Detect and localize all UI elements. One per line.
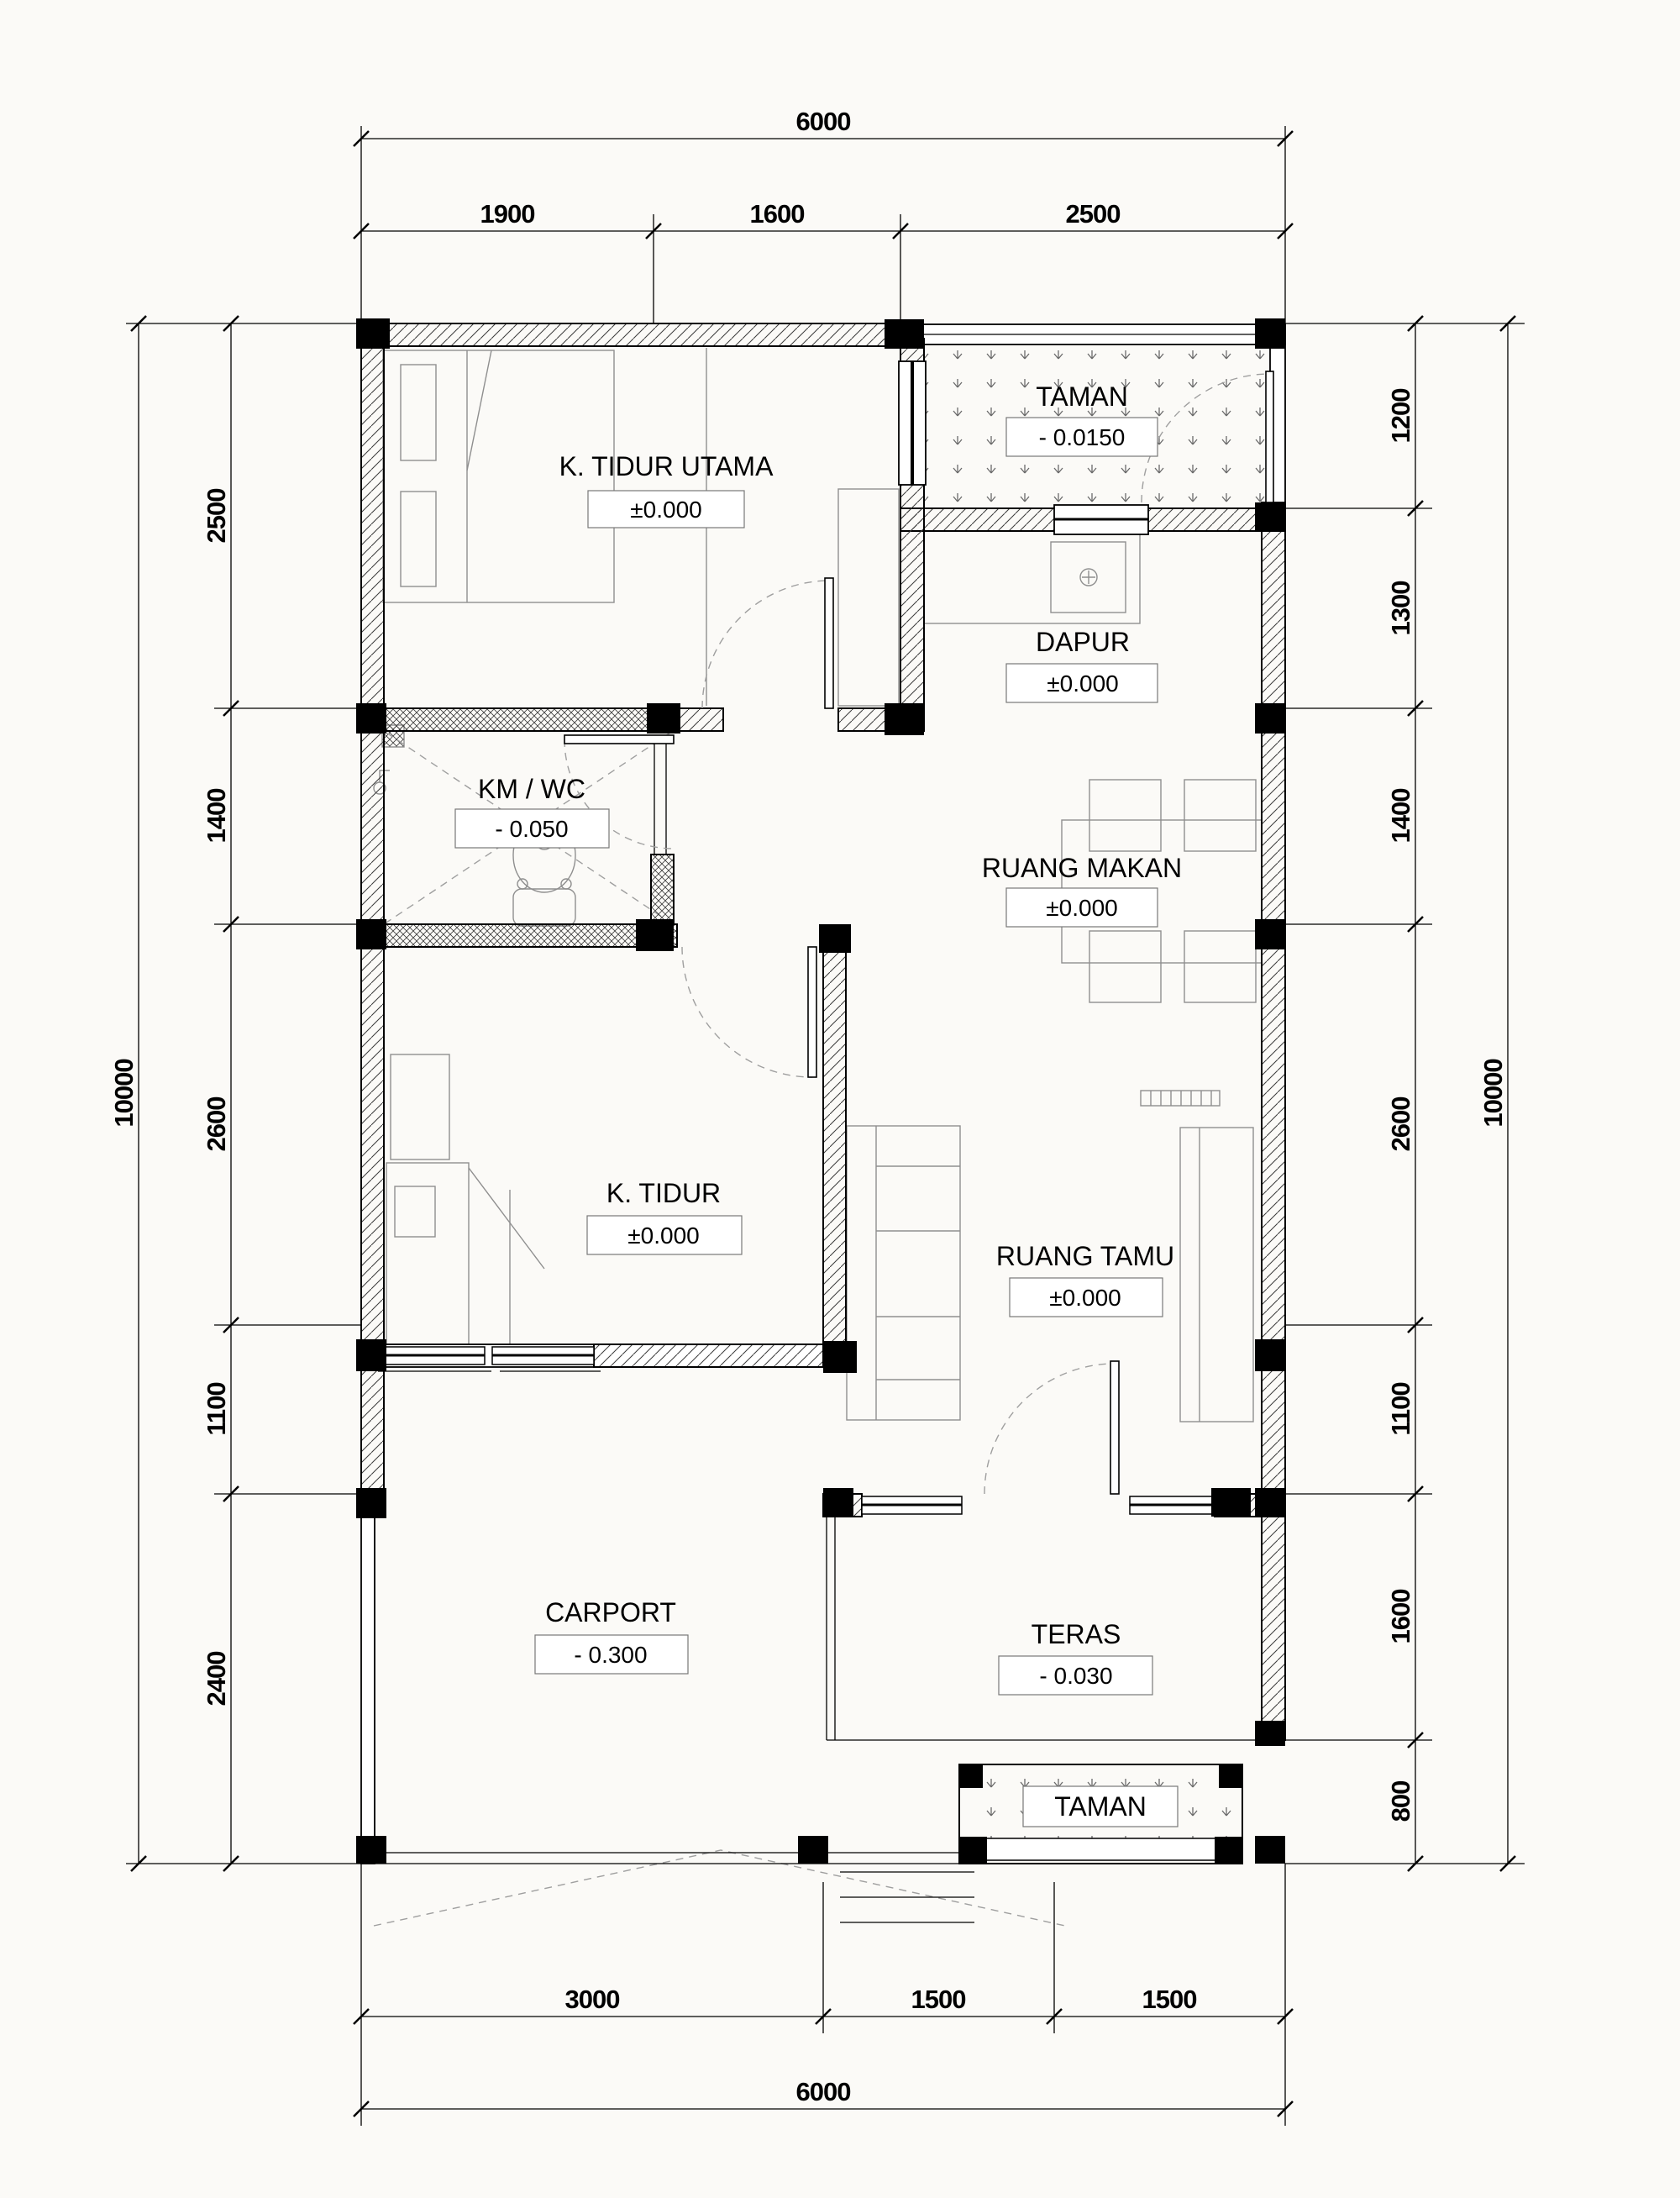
svg-text:K. TIDUR: K. TIDUR xyxy=(606,1178,721,1208)
window-ktu xyxy=(899,361,926,485)
dim-left-seg-3: 2600 xyxy=(202,1097,231,1152)
dim-right-seg-5: 1100 xyxy=(1386,1382,1415,1435)
wall-stub-kmwc xyxy=(677,708,723,731)
door-ktidur xyxy=(682,947,816,1077)
dim-right-seg-3: 1400 xyxy=(1386,789,1415,844)
dim-right-total: 10000 xyxy=(1478,1059,1508,1127)
svg-text:±0.000: ±0.000 xyxy=(1047,670,1118,697)
label-teras: TERAS - 0.030 xyxy=(999,1619,1152,1695)
svg-text:TAMAN: TAMAN xyxy=(1036,381,1128,412)
dim-left-seg-5: 2400 xyxy=(202,1652,231,1706)
dimension-chain-top: 6000 1900 1600 2500 xyxy=(354,107,1293,323)
svg-text:- 0.030: - 0.030 xyxy=(1039,1663,1112,1689)
label-taman-bottom: TAMAN xyxy=(1023,1786,1178,1827)
dim-left-seg-4: 1100 xyxy=(202,1382,231,1435)
dim-right-seg-4: 2600 xyxy=(1386,1097,1415,1152)
dim-top-seg-2: 1600 xyxy=(750,199,805,229)
wall-kmwc-east-stub xyxy=(651,854,674,924)
dim-bottom-seg-2: 1500 xyxy=(911,1985,966,2014)
door-ktu xyxy=(702,578,833,708)
svg-text:RUANG MAKAN: RUANG MAKAN xyxy=(982,853,1182,883)
dim-right-seg-1: 1200 xyxy=(1386,389,1415,444)
dim-top-seg-1: 1900 xyxy=(480,199,535,229)
dim-right-seg-2: 1300 xyxy=(1386,581,1415,636)
dim-left-seg-2: 1400 xyxy=(202,789,231,844)
svg-text:- 0.300: - 0.300 xyxy=(574,1642,647,1668)
dim-top-total: 6000 xyxy=(796,107,851,136)
wall-ktidur-east xyxy=(823,947,846,1344)
svg-text:DAPUR: DAPUR xyxy=(1036,627,1130,657)
master-wardrobe xyxy=(838,489,899,706)
svg-text:±0.000: ±0.000 xyxy=(1046,895,1117,921)
dimension-chain-bottom: 3000 1500 1500 6000 xyxy=(354,1864,1293,2126)
walls xyxy=(361,323,1285,1864)
kitchen-sink xyxy=(924,531,1140,623)
label-dapur: DAPUR ±0.000 xyxy=(1006,627,1158,702)
window-dapur xyxy=(1054,505,1148,534)
door-entry xyxy=(984,1361,1119,1494)
svg-text:CARPORT: CARPORT xyxy=(545,1597,676,1627)
label-k-tidur: K. TIDUR ±0.000 xyxy=(587,1178,742,1254)
floorplan-page: 6000 1900 1600 2500 10000 2500 1400 2600… xyxy=(0,0,1680,2198)
dim-right-seg-6: 1600 xyxy=(1386,1590,1415,1644)
svg-text:±0.000: ±0.000 xyxy=(1049,1285,1121,1311)
svg-text:TERAS: TERAS xyxy=(1032,1619,1121,1649)
wall-ktidur-south xyxy=(361,1344,823,1371)
sofa xyxy=(847,1126,960,1420)
svg-text:±0.000: ±0.000 xyxy=(627,1223,699,1249)
fence-carport-left xyxy=(361,1494,375,1864)
bedroom2-furniture xyxy=(386,1054,544,1344)
label-ruang-makan: RUANG MAKAN ±0.000 xyxy=(982,853,1182,927)
svg-text:- 0.050: - 0.050 xyxy=(495,816,568,842)
label-ruang-tamu: RUANG TAMU ±0.000 xyxy=(996,1241,1174,1317)
wall-left xyxy=(361,323,384,1494)
svg-text:±0.000: ±0.000 xyxy=(630,497,701,523)
dim-left-total: 10000 xyxy=(109,1059,139,1127)
label-k-tidur-utama: K. TIDUR UTAMA ±0.000 xyxy=(559,451,774,528)
svg-text:RUANG TAMU: RUANG TAMU xyxy=(996,1241,1174,1271)
svg-text:KM / WC: KM / WC xyxy=(478,774,585,804)
floorplan-drawing: 6000 1900 1600 2500 10000 2500 1400 2600… xyxy=(0,0,1680,2198)
svg-text:K. TIDUR UTAMA: K. TIDUR UTAMA xyxy=(559,451,774,481)
label-km-wc: KM / WC - 0.050 xyxy=(455,774,609,848)
dim-top-seg-3: 2500 xyxy=(1066,199,1121,229)
dim-right-seg-7: 800 xyxy=(1386,1781,1415,1822)
svg-text:TAMAN: TAMAN xyxy=(1054,1791,1147,1822)
wall-right xyxy=(1262,502,1285,1740)
label-carport: CARPORT - 0.300 xyxy=(535,1597,688,1674)
dim-bottom-seg-1: 3000 xyxy=(565,1985,620,2014)
garden-fill-patterns xyxy=(924,348,1270,1838)
svg-text:- 0.0150: - 0.0150 xyxy=(1039,424,1126,450)
dimension-chain-right: 1200 1300 1400 2600 1100 1600 800 10000 xyxy=(1285,316,1525,1871)
room-labels: K. TIDUR UTAMA ±0.000 TAMAN - 0.0150 DAP… xyxy=(455,381,1182,1827)
wall-kmwc-north xyxy=(361,708,677,731)
dim-left-seg-1: 2500 xyxy=(202,489,231,544)
dim-bottom-seg-3: 1500 xyxy=(1142,1985,1197,2014)
dim-bottom-total: 6000 xyxy=(796,2077,851,2106)
dimension-chain-left: 10000 2500 1400 2600 1100 2400 xyxy=(109,316,361,1871)
wall-kmwc-south xyxy=(361,924,677,947)
wall-top xyxy=(361,323,900,346)
